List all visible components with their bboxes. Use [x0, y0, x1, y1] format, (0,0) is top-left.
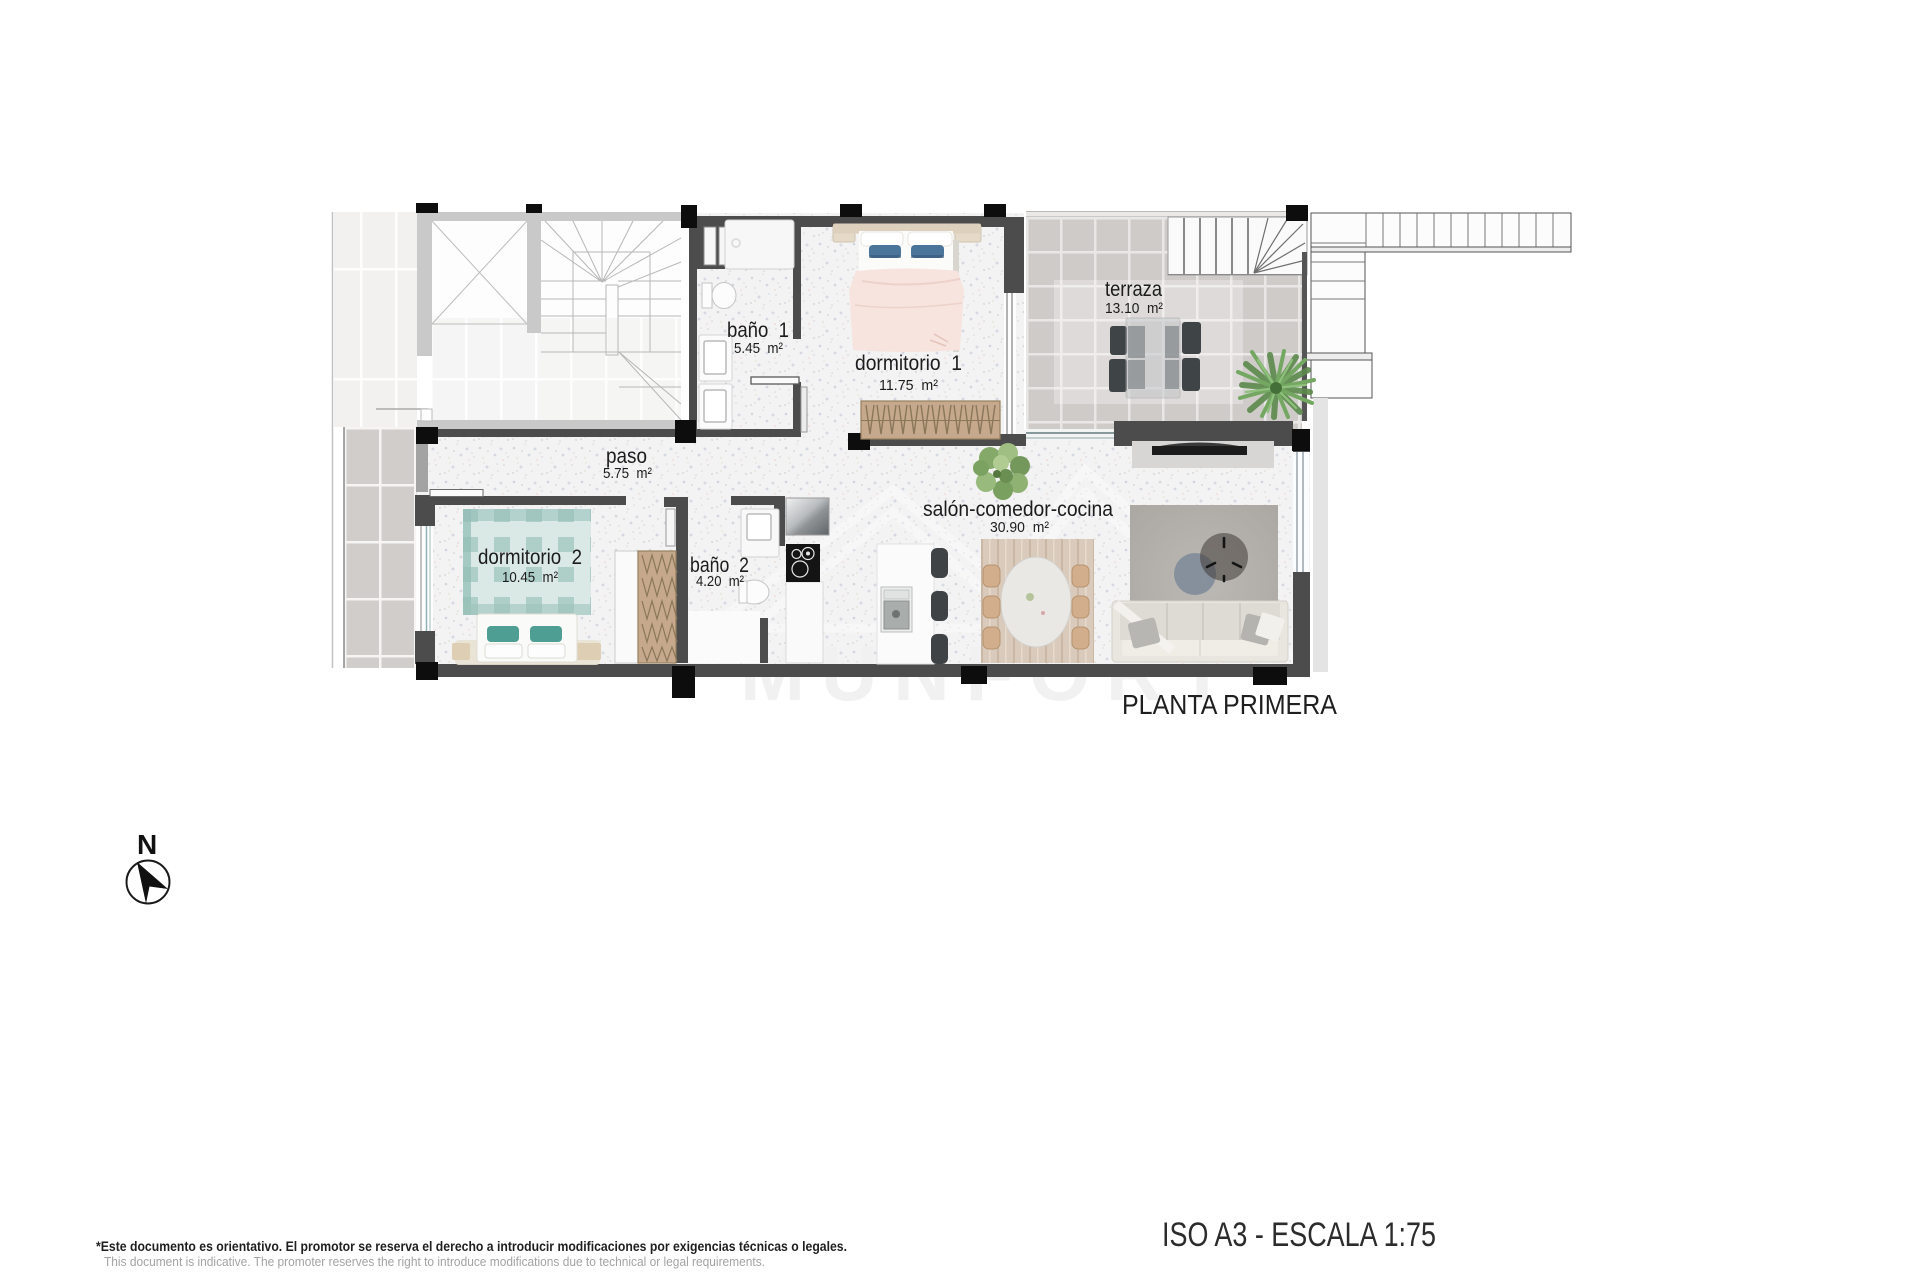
svg-text:30.90 m²: 30.90 m²	[990, 519, 1049, 536]
svg-text:10.45 m²: 10.45 m²	[502, 569, 558, 586]
svg-text:salón-comedor-cocina: salón-comedor-cocina	[923, 498, 1113, 521]
svg-text:This document is indicative. T: This document is indicative. The promote…	[104, 1255, 765, 1269]
svg-text:4.20 m²: 4.20 m²	[696, 573, 744, 590]
svg-text:terraza: terraza	[1105, 278, 1162, 301]
svg-text:ISO A3 - ESCALA 1:75: ISO A3 - ESCALA 1:75	[1162, 1216, 1436, 1254]
svg-text:N: N	[137, 829, 157, 860]
svg-text:baño 1: baño 1	[727, 319, 789, 342]
svg-text:11.75 m²: 11.75 m²	[879, 377, 938, 394]
svg-text:dormitorio 2: dormitorio 2	[478, 546, 582, 569]
svg-text:*Este documento es orientativo: *Este documento es orientativo. El promo…	[96, 1239, 847, 1254]
svg-text:PLANTA PRIMERA: PLANTA PRIMERA	[1122, 689, 1337, 720]
svg-text:5.45 m²: 5.45 m²	[734, 340, 783, 357]
svg-text:13.10 m²: 13.10 m²	[1105, 300, 1163, 317]
svg-text:dormitorio 1: dormitorio 1	[855, 352, 962, 375]
svg-text:5.75 m²: 5.75 m²	[603, 465, 652, 482]
